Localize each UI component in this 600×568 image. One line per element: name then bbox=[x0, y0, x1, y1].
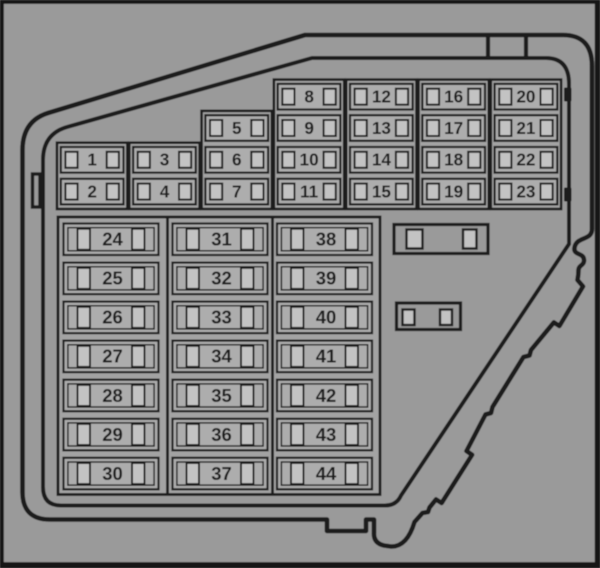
svg-text:4: 4 bbox=[160, 181, 170, 201]
svg-text:33: 33 bbox=[211, 307, 232, 328]
svg-text:25: 25 bbox=[102, 268, 123, 289]
svg-text:12: 12 bbox=[372, 87, 391, 107]
svg-text:15: 15 bbox=[372, 181, 392, 201]
svg-text:16: 16 bbox=[444, 87, 463, 107]
svg-text:39: 39 bbox=[316, 268, 337, 289]
svg-text:8: 8 bbox=[304, 87, 314, 107]
svg-text:17: 17 bbox=[444, 118, 463, 138]
svg-text:35: 35 bbox=[211, 385, 232, 406]
svg-text:40: 40 bbox=[316, 307, 337, 328]
svg-text:24: 24 bbox=[102, 229, 123, 250]
svg-text:27: 27 bbox=[102, 346, 123, 367]
svg-text:11: 11 bbox=[300, 181, 319, 201]
svg-text:20: 20 bbox=[516, 87, 535, 107]
svg-text:26: 26 bbox=[102, 307, 123, 328]
svg-text:9: 9 bbox=[304, 118, 314, 138]
svg-text:19: 19 bbox=[444, 181, 463, 201]
svg-text:30: 30 bbox=[102, 463, 123, 484]
svg-text:29: 29 bbox=[102, 424, 123, 445]
svg-text:7: 7 bbox=[232, 181, 242, 201]
svg-text:10: 10 bbox=[300, 150, 319, 170]
svg-text:6: 6 bbox=[232, 150, 242, 170]
svg-text:18: 18 bbox=[444, 150, 464, 170]
svg-text:13: 13 bbox=[372, 118, 391, 138]
svg-text:28: 28 bbox=[102, 385, 123, 406]
svg-text:5: 5 bbox=[232, 118, 242, 138]
svg-text:32: 32 bbox=[211, 268, 232, 289]
svg-text:41: 41 bbox=[316, 346, 337, 367]
svg-text:2: 2 bbox=[87, 181, 97, 201]
svg-text:14: 14 bbox=[372, 150, 392, 170]
svg-text:37: 37 bbox=[211, 463, 232, 484]
svg-text:36: 36 bbox=[211, 424, 232, 445]
svg-text:23: 23 bbox=[516, 181, 535, 201]
svg-text:44: 44 bbox=[316, 463, 337, 484]
svg-text:21: 21 bbox=[516, 118, 536, 138]
svg-text:22: 22 bbox=[516, 150, 535, 170]
svg-text:31: 31 bbox=[211, 229, 232, 250]
svg-text:38: 38 bbox=[316, 229, 337, 250]
svg-text:1: 1 bbox=[87, 150, 97, 170]
svg-text:42: 42 bbox=[316, 385, 337, 406]
svg-text:3: 3 bbox=[160, 150, 170, 170]
svg-text:43: 43 bbox=[316, 424, 337, 445]
svg-text:34: 34 bbox=[211, 346, 232, 367]
